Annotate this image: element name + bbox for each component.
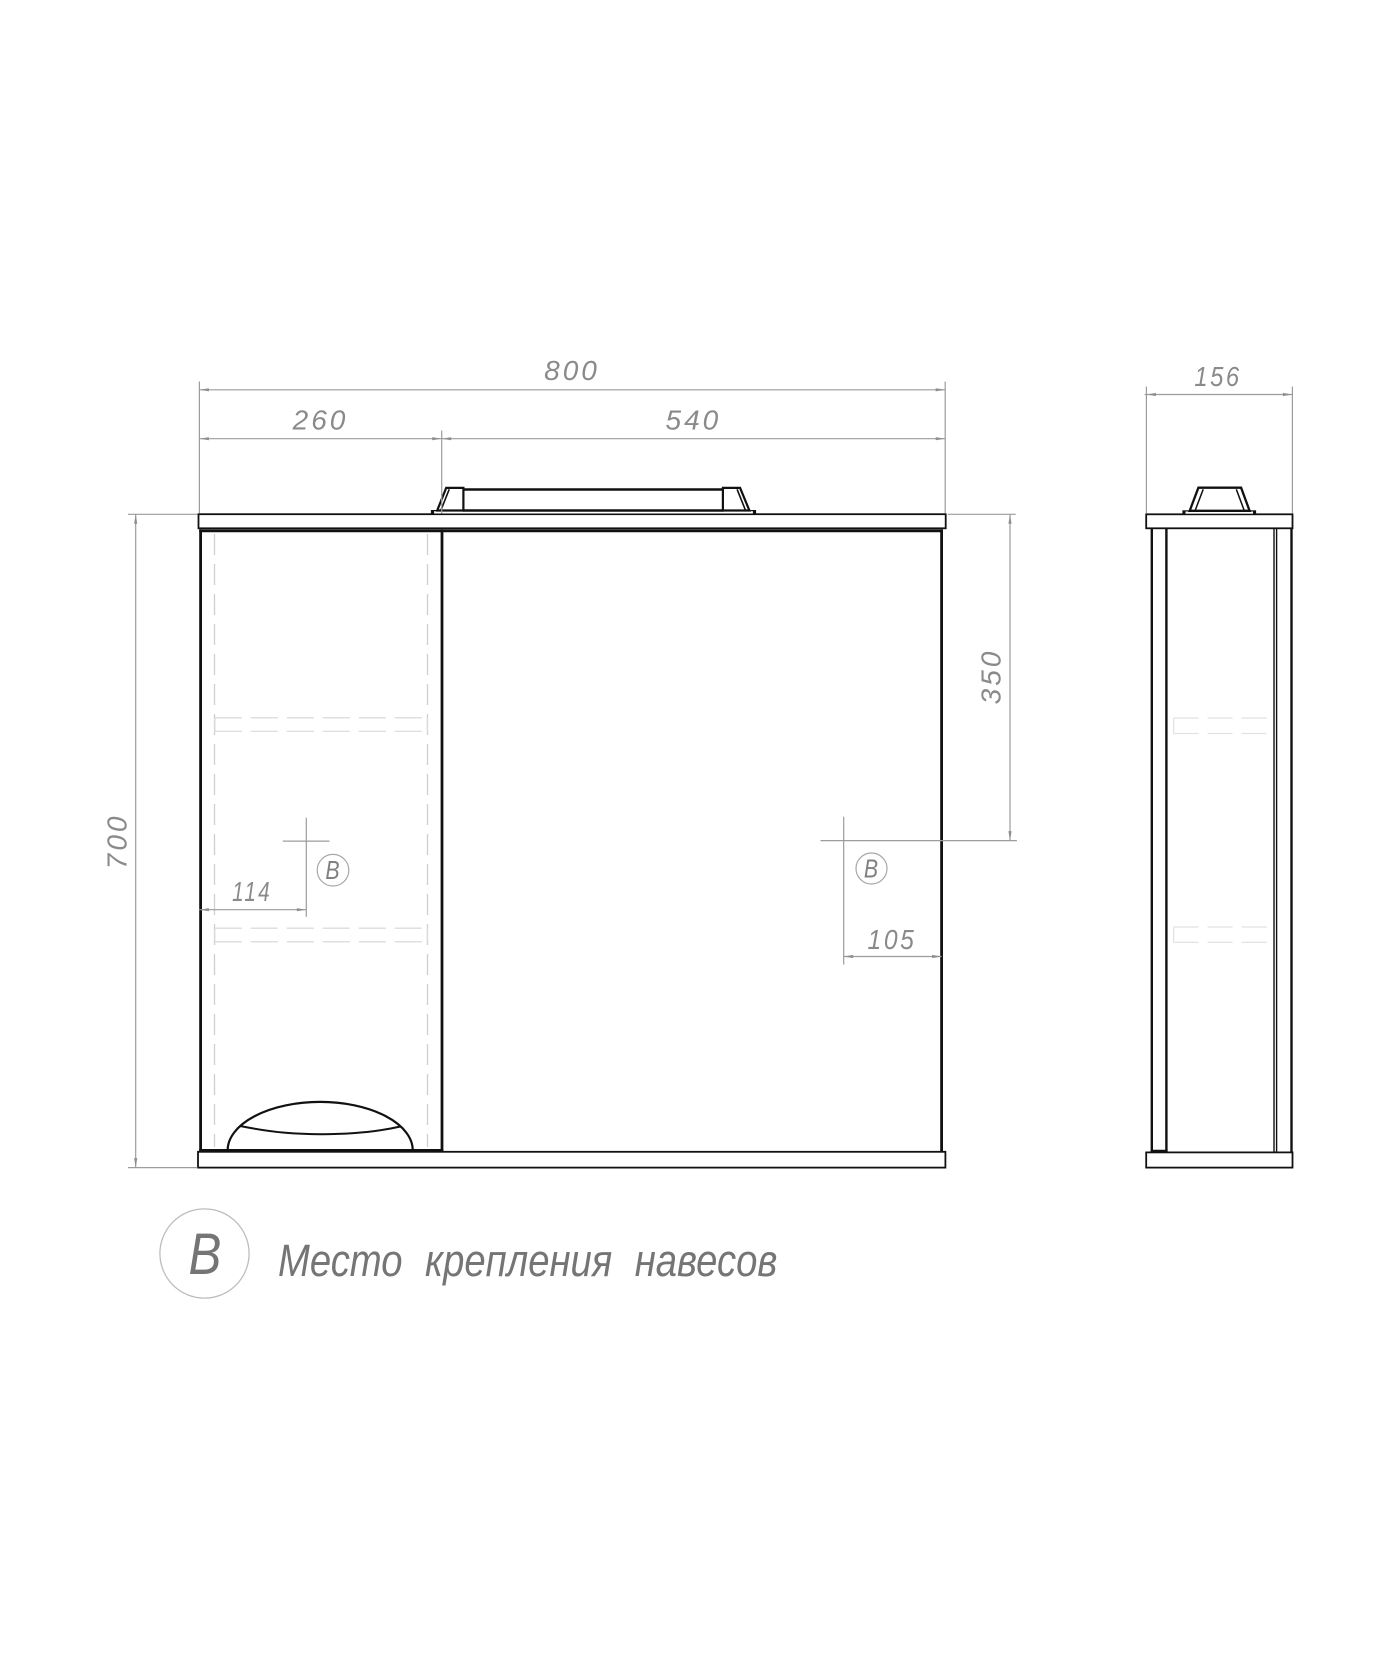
svg-text:540: 540 (666, 405, 722, 436)
svg-text:800: 800 (544, 355, 600, 386)
svg-text:156: 156 (1194, 360, 1241, 392)
svg-text:350: 350 (976, 649, 1007, 705)
svg-text:114: 114 (232, 877, 272, 908)
svg-text:700: 700 (102, 814, 133, 870)
svg-text:B: B (189, 1222, 222, 1287)
svg-text:B: B (325, 856, 339, 886)
svg-text:B: B (864, 854, 878, 884)
svg-text:105: 105 (867, 923, 916, 955)
svg-text:Место крепления навесов: Место крепления навесов (278, 1235, 777, 1286)
svg-text:260: 260 (292, 405, 349, 436)
